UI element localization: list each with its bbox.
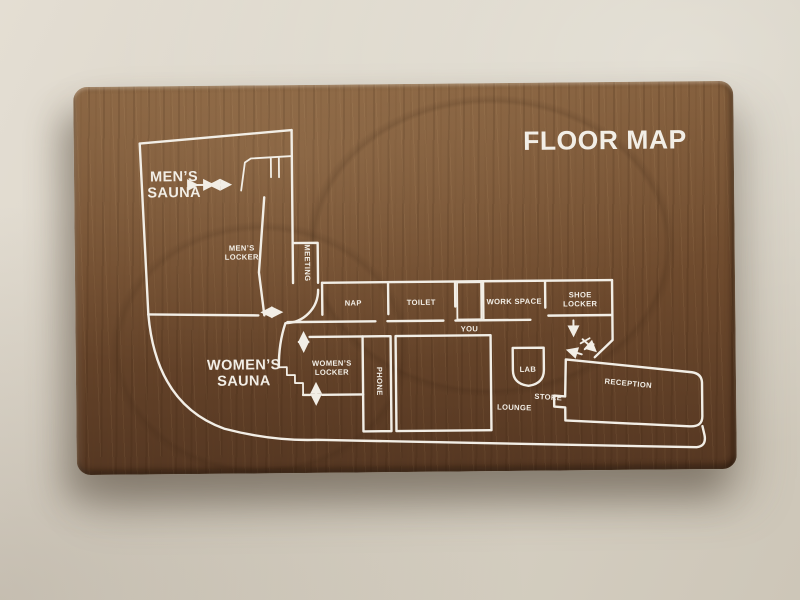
room-label-mens-locker-line1: MEN’S <box>229 243 255 252</box>
floor-map-drawing: FLOOR MAP MEN’S SAUNA MEN’S LOCKER MEETI… <box>73 81 737 475</box>
room-label-lounge: LOUNGE <box>497 403 532 413</box>
room-label-reception: RECEPTION <box>604 377 652 390</box>
room-label-lab: LAB <box>520 365 537 374</box>
wall-background: FLOOR MAP MEN’S SAUNA MEN’S LOCKER MEETI… <box>0 0 800 600</box>
lounge-deck-area <box>396 335 492 431</box>
you-are-here-marker <box>457 282 481 319</box>
floor-map-title: FLOOR MAP <box>523 124 687 156</box>
room-label-mens-locker-line2: LOCKER <box>225 252 259 261</box>
wall-left <box>140 143 149 314</box>
wall-entry <box>594 280 613 357</box>
entry-arrow-out-icon <box>569 350 582 354</box>
room-label-shoe-locker-line1: SHOE <box>569 290 592 299</box>
room-label-nap: NAP <box>345 298 362 307</box>
floor-map-sign-board: FLOOR MAP MEN’S SAUNA MEN’S LOCKER MEETI… <box>73 81 737 475</box>
wall-womens-steps <box>279 367 303 395</box>
room-label-toilet: TOILET <box>407 298 436 307</box>
room-label-womens-sauna-line2: SAUNA <box>217 373 271 390</box>
wall-wing-bottom <box>148 313 258 316</box>
room-label-meeting: MEETING <box>303 244 312 281</box>
wall-wing-right <box>292 130 293 283</box>
room-label-phone: PHONE <box>375 367 384 396</box>
wall-mens-divider <box>258 197 265 315</box>
wall-reception <box>554 358 703 428</box>
room-label-womens-sauna-line1: WOMEN’S <box>207 357 281 374</box>
room-label-womens-locker-line2: LOCKER <box>315 368 349 377</box>
room-label-store: STORE <box>534 392 562 403</box>
room-label-mens-sauna-line2: SAUNA <box>147 185 201 202</box>
wall-corridor-arc <box>278 290 319 367</box>
wall-top <box>140 130 292 143</box>
room-label-you: YOU <box>461 324 479 333</box>
room-label-womens-locker-line1: WOMEN’S <box>312 359 352 368</box>
map-walls <box>140 126 705 452</box>
room-labels: MEN’S SAUNA MEN’S LOCKER MEETING NAP TOI… <box>147 165 652 416</box>
room-label-work-space: WORK SPACE <box>487 297 542 307</box>
wall-mens-sauna-door <box>241 156 292 190</box>
wall-room-bottoms <box>287 315 612 322</box>
room-label-mens-sauna-line1: MEN’S <box>150 169 198 185</box>
room-label-shoe-locker-line2: LOCKER <box>563 299 597 308</box>
